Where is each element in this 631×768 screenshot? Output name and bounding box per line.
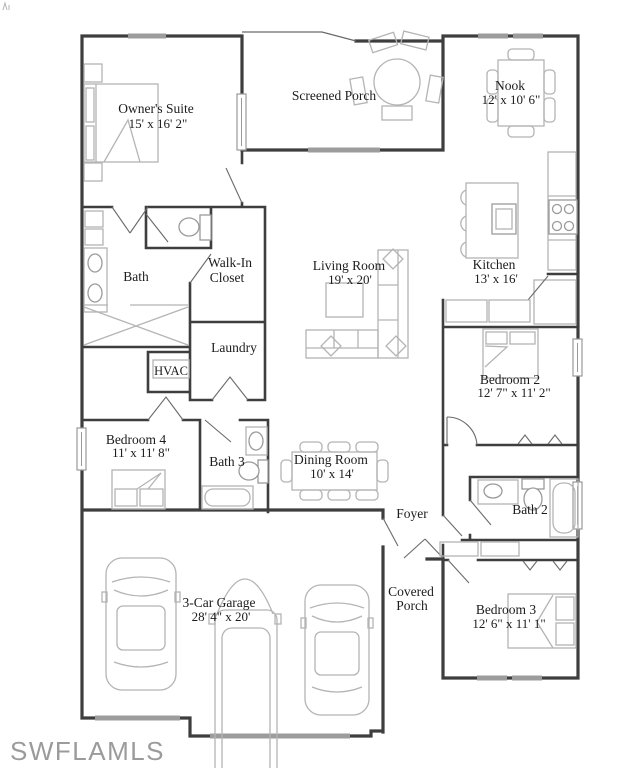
room-label-living-room: Living Room	[313, 258, 386, 273]
vanity	[246, 427, 267, 455]
chair-icon	[356, 490, 378, 500]
sink-icon	[249, 432, 263, 450]
chair-icon	[328, 490, 350, 500]
room-label-dining-room: Dining Room	[294, 452, 368, 467]
stove-icon	[549, 200, 577, 234]
chair-icon	[544, 98, 555, 122]
bed-icon	[112, 470, 165, 509]
room-dims-kitchen: 13' x 16'	[474, 271, 518, 286]
window-marker	[128, 34, 166, 39]
room-dims-bedroom-4: 11' x 11' 8"	[112, 445, 170, 460]
scan-artifact	[3, 3, 9, 10]
bedroom-2-furniture	[483, 329, 538, 378]
room-label-walk-in-closet-2: Closet	[210, 270, 245, 285]
watermark: SWFLAMLS	[10, 736, 165, 766]
chair-icon	[281, 460, 292, 482]
garage-door-marker	[210, 734, 350, 739]
kitchen-fixtures	[446, 152, 577, 324]
chair-icon	[300, 490, 322, 500]
car-icon	[301, 585, 373, 715]
room-dims-nook: 12' x 10' 6"	[482, 92, 541, 107]
toilet-icon	[179, 215, 211, 240]
car-icon	[102, 558, 180, 690]
room-dims-living-room: 19' x 20'	[328, 272, 372, 287]
window-marker	[237, 94, 246, 150]
sink-icon	[484, 484, 502, 498]
chair-icon	[328, 442, 350, 452]
porch-roof-line	[242, 32, 356, 41]
vanity	[478, 480, 518, 504]
kitchen-island-icon	[461, 183, 518, 258]
room-dims-bedroom-2: 12' 7" x 11' 2"	[477, 385, 550, 400]
chair-icon	[508, 49, 534, 60]
slider-door-marker	[308, 148, 380, 153]
room-label-bath-3: Bath 3	[209, 454, 245, 469]
bathtub-icon	[202, 486, 253, 509]
room-dims-owners-suite: 15' x 16' 2"	[129, 116, 188, 131]
room-label-foyer: Foyer	[396, 506, 428, 521]
stool-icon	[461, 190, 466, 257]
double-vanity	[84, 248, 107, 312]
window-marker	[478, 34, 508, 39]
room-label-owners-suite: Owner's Suite	[118, 101, 194, 116]
linen-shelf	[481, 542, 519, 556]
window-marker	[513, 34, 543, 39]
chair-icon	[356, 442, 378, 452]
bedroom-4-furniture	[112, 470, 165, 509]
bed-icon	[483, 329, 538, 378]
chair-icon	[382, 106, 412, 120]
room-label-screened-porch: Screened Porch	[292, 88, 377, 103]
chair-icon	[426, 75, 443, 103]
room-label-kitchen: Kitchen	[473, 257, 516, 272]
pantry-shelf	[446, 300, 487, 322]
door-arc	[447, 417, 477, 445]
chair-icon	[377, 460, 388, 482]
pantry-shelf	[489, 300, 530, 322]
room-label-laundry: Laundry	[211, 340, 257, 355]
window-marker	[512, 676, 542, 681]
sink-icon	[88, 254, 102, 272]
screened-porch-furniture	[350, 31, 443, 120]
room-label-covered-porch: Covered	[388, 584, 434, 599]
room-label-garage: 3-Car Garage	[182, 595, 255, 610]
room-label-covered-porch-2: Porch	[396, 598, 428, 613]
room-dims-bedroom-3: 12' 6" x 11' 1"	[472, 616, 545, 631]
window-marker	[77, 428, 86, 470]
linen-shelf	[440, 542, 478, 556]
coffee-table-icon	[326, 283, 363, 317]
bath-2-fixtures	[440, 479, 578, 556]
linen-shelf	[85, 229, 103, 245]
nightstand-icon	[84, 64, 102, 82]
room-label-bath-2: Bath 2	[512, 502, 548, 517]
nightstand-icon	[84, 163, 102, 181]
floor-plan-svg: Owner's Suite 15' x 16' 2" Screened Porc…	[0, 0, 631, 768]
room-dims-dining-room: 10' x 14'	[310, 466, 354, 481]
room-label-bath: Bath	[123, 269, 149, 284]
pantry-counter	[534, 280, 576, 324]
sink-icon	[88, 284, 102, 302]
floor-plan-page: Owner's Suite 15' x 16' 2" Screened Porc…	[0, 0, 631, 768]
shower-icon	[84, 305, 188, 345]
garage-door-marker	[95, 716, 180, 721]
room-label-bedroom-3: Bedroom 3	[476, 602, 537, 617]
round-table-icon	[374, 59, 420, 105]
room-labels: Owner's Suite 15' x 16' 2" Screened Porc…	[106, 78, 551, 631]
room-dims-garage: 28' 4" x 20'	[192, 609, 251, 624]
linen-shelf	[85, 211, 103, 227]
room-label-walk-in-closet: Walk-In	[208, 255, 252, 270]
chair-icon	[508, 126, 534, 137]
chair-icon	[544, 70, 555, 94]
window-marker	[573, 339, 582, 376]
chair-icon	[300, 442, 322, 452]
room-label-hvac: HVAC	[154, 364, 188, 378]
room-label-nook: Nook	[495, 78, 525, 93]
window-marker	[477, 676, 507, 681]
